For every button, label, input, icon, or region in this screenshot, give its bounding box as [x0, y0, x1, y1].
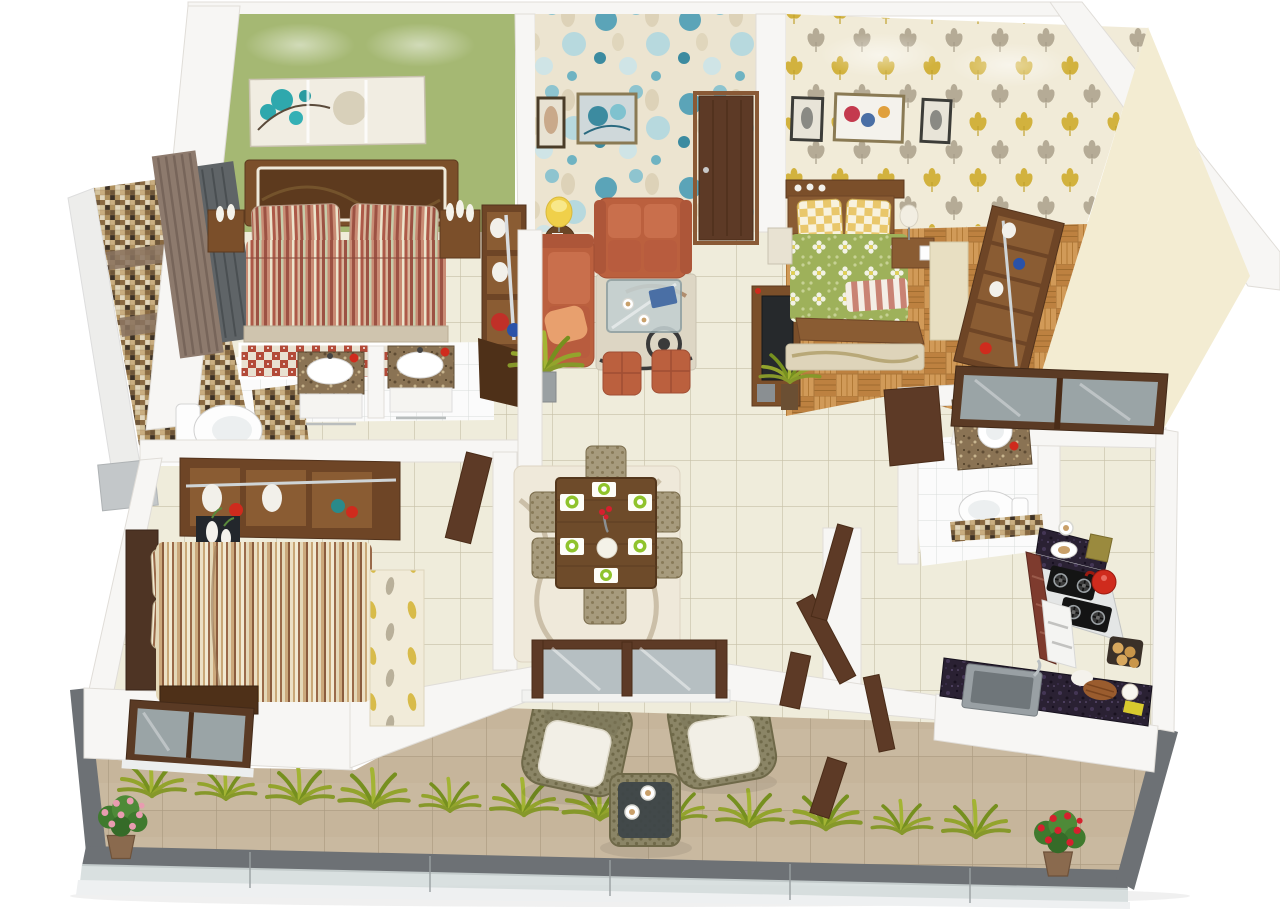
clothes-red	[346, 506, 358, 518]
bed-base	[244, 326, 448, 342]
towel-roll	[490, 218, 506, 238]
floor-plan-render	[0, 0, 1280, 910]
cup	[641, 786, 655, 800]
place-setting	[560, 494, 584, 511]
window-bedroom2-kitchen	[951, 366, 1168, 434]
framed-art-portrait	[538, 98, 564, 147]
master-bed	[244, 160, 458, 342]
vanity-divider-wall	[368, 346, 384, 418]
towel-roll	[492, 262, 508, 282]
coffee-table	[607, 280, 681, 332]
window-bedroom3	[122, 699, 258, 777]
striped-duvet-3	[156, 542, 372, 702]
red-tumbler	[350, 354, 359, 363]
headboard-shelf	[786, 180, 904, 198]
red-tumbler	[1010, 442, 1019, 451]
clothes-red	[229, 503, 243, 517]
clothes-white	[202, 484, 222, 512]
place-setting	[560, 538, 584, 555]
open-door-bathroom2	[884, 386, 944, 466]
wall-dining-west	[493, 452, 517, 670]
clothes-white	[262, 484, 282, 512]
coconut	[1122, 684, 1138, 700]
nightstand-left	[208, 204, 244, 252]
clothes-teal	[331, 499, 345, 513]
muffin-tray	[1106, 636, 1144, 668]
entry-door	[695, 93, 757, 243]
leaf-runner-rug	[370, 570, 424, 726]
sofa-loveseat	[594, 198, 692, 278]
wall-east-exterior	[1152, 428, 1178, 732]
striped-duvet	[246, 240, 446, 334]
place-setting	[628, 494, 652, 511]
wall-pillar	[756, 14, 786, 232]
striped-throw	[845, 278, 909, 312]
bedroom2-rug	[786, 344, 924, 370]
red-tumbler	[441, 348, 450, 357]
wall-pillar	[515, 14, 537, 232]
door-handle	[703, 167, 709, 173]
framed-art-row	[791, 94, 951, 143]
framed-art-teal	[578, 94, 636, 143]
vanity-basin-left	[298, 352, 364, 424]
brass-canisters	[1086, 534, 1113, 562]
place-setting	[592, 482, 616, 497]
wicker-table	[610, 774, 680, 846]
nightstand-2	[768, 228, 792, 264]
floor-plan-image	[0, 0, 1280, 910]
dining-chair	[584, 584, 626, 624]
serving-bowl	[597, 538, 617, 558]
bed-platform	[796, 318, 924, 344]
wall-master-living	[518, 230, 542, 475]
place-setting	[594, 568, 618, 583]
place-setting	[628, 538, 652, 555]
cup	[625, 805, 639, 819]
dining-table	[556, 478, 656, 588]
wall-art-teal	[249, 76, 425, 146]
balcony-sliding-door	[522, 640, 730, 702]
vanity-basin-right	[388, 346, 454, 418]
top-wall-cap	[188, 2, 1070, 16]
bed-3	[126, 530, 372, 714]
photo-frame	[920, 246, 930, 260]
red-bucket	[491, 313, 509, 331]
